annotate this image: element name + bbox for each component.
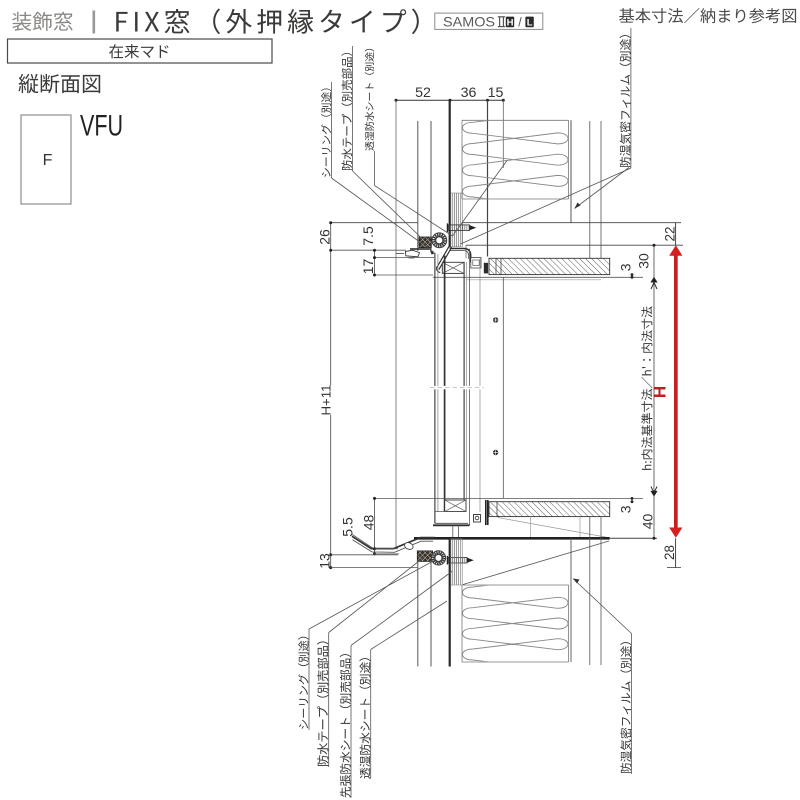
svg-text:5.5: 5.5 — [340, 517, 356, 537]
svg-text:52: 52 — [415, 85, 431, 101]
svg-text:26: 26 — [317, 229, 333, 245]
svg-text:15: 15 — [488, 85, 504, 101]
svg-text:28: 28 — [662, 545, 677, 560]
svg-text:H+11: H+11 — [318, 385, 333, 416]
svg-text:30: 30 — [636, 253, 652, 269]
svg-text:22: 22 — [663, 226, 678, 241]
svg-text:H: H — [651, 386, 670, 398]
svg-text:3: 3 — [618, 263, 634, 271]
svg-text:VFU: VFU — [80, 110, 123, 143]
svg-text:48: 48 — [361, 515, 377, 531]
svg-text:SAMOS: SAMOS — [443, 13, 495, 29]
svg-text:3: 3 — [618, 505, 634, 513]
svg-text:7.5: 7.5 — [360, 226, 376, 246]
svg-text:36: 36 — [461, 85, 477, 101]
svg-text:13: 13 — [317, 553, 333, 569]
svg-text:17: 17 — [360, 259, 376, 275]
svg-text:H: H — [507, 17, 514, 28]
svg-text:/: / — [518, 16, 522, 30]
svg-text:F: F — [43, 152, 53, 169]
svg-text:L: L — [527, 17, 533, 28]
svg-text:40: 40 — [640, 514, 656, 530]
